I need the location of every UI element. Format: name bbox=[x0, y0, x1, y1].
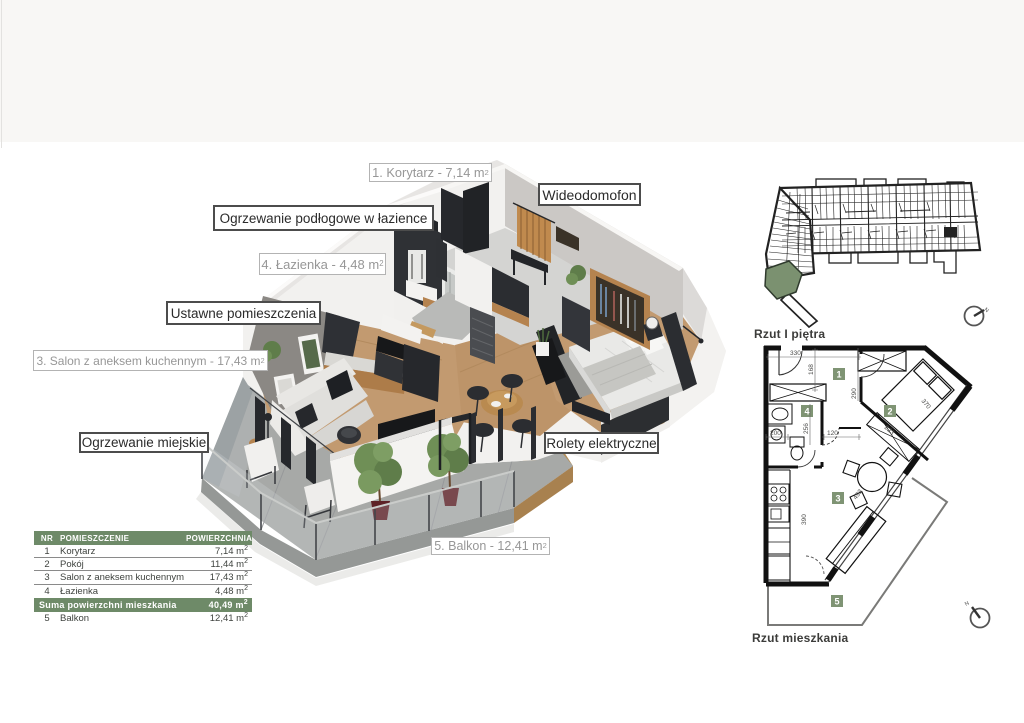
svg-text:3: 3 bbox=[835, 494, 840, 504]
svg-text:N: N bbox=[964, 601, 970, 608]
svg-text:390: 390 bbox=[801, 514, 808, 525]
svg-text:223: 223 bbox=[883, 424, 896, 437]
svg-text:330: 330 bbox=[790, 350, 801, 357]
svg-text:1: 1 bbox=[836, 370, 841, 380]
svg-text:200: 200 bbox=[770, 430, 781, 437]
svg-text:5: 5 bbox=[834, 597, 839, 607]
svg-text:4: 4 bbox=[804, 407, 809, 417]
svg-text:290: 290 bbox=[851, 388, 858, 399]
svg-text:493: 493 bbox=[852, 488, 864, 501]
svg-text:168: 168 bbox=[808, 364, 815, 375]
svg-text:256: 256 bbox=[803, 423, 810, 434]
svg-text:370: 370 bbox=[919, 398, 932, 411]
svg-text:120: 120 bbox=[827, 430, 838, 437]
svg-text:2: 2 bbox=[887, 407, 892, 417]
